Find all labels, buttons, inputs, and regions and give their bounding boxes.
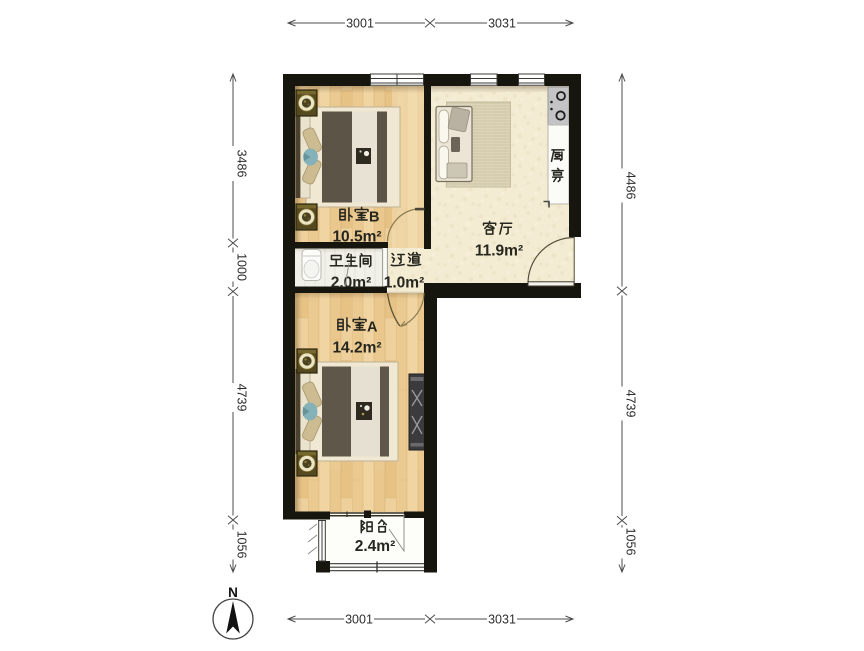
svg-text:3001: 3001 bbox=[346, 17, 374, 31]
svg-text:3031: 3031 bbox=[488, 17, 516, 31]
svg-text:3486: 3486 bbox=[234, 150, 248, 178]
svg-text:10.5m²: 10.5m² bbox=[332, 229, 381, 246]
svg-text:4739: 4739 bbox=[234, 384, 248, 412]
svg-text:2.4m²: 2.4m² bbox=[355, 538, 396, 555]
svg-text:A: A bbox=[367, 320, 378, 336]
svg-text:1056: 1056 bbox=[234, 531, 248, 559]
svg-text:1000: 1000 bbox=[234, 253, 248, 281]
svg-text:1056: 1056 bbox=[623, 528, 637, 556]
svg-text:3001: 3001 bbox=[345, 613, 373, 627]
svg-text:3031: 3031 bbox=[488, 613, 516, 627]
svg-text:14.2m²: 14.2m² bbox=[332, 340, 381, 357]
svg-text:4739: 4739 bbox=[623, 390, 637, 418]
svg-text:B: B bbox=[369, 210, 379, 226]
svg-text:11.9m²: 11.9m² bbox=[475, 243, 523, 260]
svg-text:2.0m²: 2.0m² bbox=[331, 275, 372, 292]
svg-text:4486: 4486 bbox=[623, 172, 637, 200]
svg-text:N: N bbox=[228, 585, 238, 600]
svg-text:1.0m²: 1.0m² bbox=[384, 275, 425, 292]
